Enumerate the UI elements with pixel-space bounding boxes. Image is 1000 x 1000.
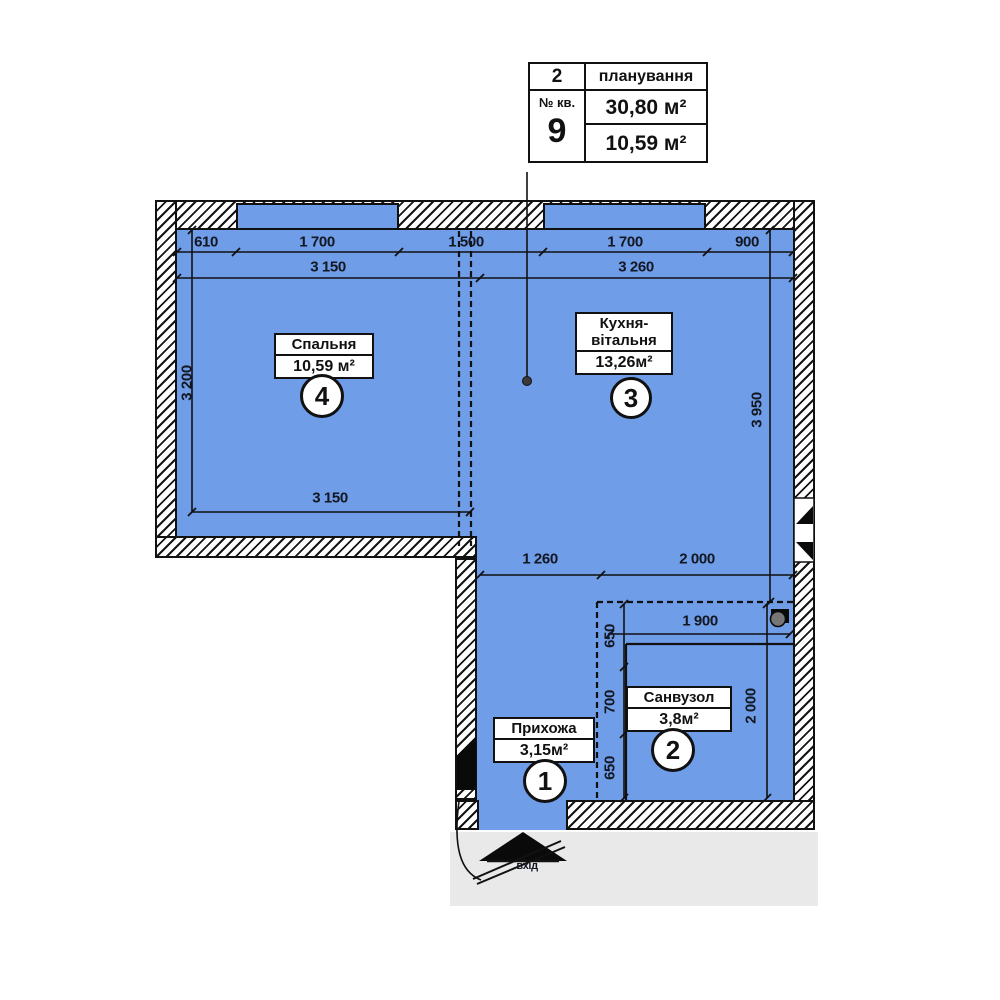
- dim-bath-left-650b: 650: [602, 756, 619, 780]
- plan-linework: [0, 0, 1000, 1000]
- dim-top-seg-610: 610: [194, 234, 218, 251]
- kitchen-number-badge: 3: [610, 377, 652, 419]
- bathroom-area: 3,8м²: [628, 709, 730, 730]
- kitchen-area: 13,26м²: [577, 352, 671, 373]
- dim-bath-left-700: 700: [602, 690, 619, 714]
- apartment-number-cell: № кв. 9: [530, 91, 586, 161]
- hallway-area: 3,15м²: [495, 740, 593, 761]
- entrance-label: вхід: [516, 860, 537, 872]
- hallway-label: Прихожа 3,15м²: [493, 717, 595, 763]
- floor-plan-canvas: 610 1 700 1 500 1 700 900 3 150 3 260 3 …: [0, 0, 1000, 1000]
- dim-top-total-3150: 3 150: [310, 259, 346, 276]
- bedroom-label: Спальня 10,59 м²: [274, 333, 374, 379]
- dim-right-height-3950: 3 950: [749, 392, 766, 428]
- title-block-row-areas: № кв. 9 30,80 м² 10,59 м²: [530, 91, 706, 161]
- apartment-number: 9: [530, 110, 584, 152]
- bathroom-label: Санвузол 3,8м²: [626, 686, 732, 732]
- bedroom-number-badge: 4: [300, 374, 344, 418]
- bathroom-name: Санвузол: [628, 688, 730, 709]
- dim-left-height-3200: 3 200: [179, 365, 196, 401]
- hallway-name: Прихожа: [495, 719, 593, 740]
- title-block-row-floor: 2 планування: [530, 64, 706, 91]
- dim-bedroom-bottom-3150: 3 150: [312, 490, 348, 507]
- living-area: 10,59 м²: [586, 125, 706, 161]
- plan-label: планування: [586, 64, 706, 89]
- floor-number: 2: [530, 64, 586, 89]
- dim-top-seg-1500: 1 500: [448, 234, 484, 251]
- dim-bath-left-650a: 650: [602, 624, 619, 648]
- dim-lower-1260: 1 260: [522, 551, 558, 568]
- dim-bath-height-2000: 2 000: [743, 688, 760, 724]
- title-block: 2 планування № кв. 9 30,80 м² 10,59 м²: [528, 62, 708, 163]
- dim-top-seg-900: 900: [735, 234, 759, 251]
- kitchen-label: Кухня-вітальня 13,26м²: [575, 312, 673, 375]
- dim-top-seg-1700b: 1 700: [607, 234, 643, 251]
- kitchen-name: Кухня-вітальня: [577, 314, 671, 352]
- bathroom-number-badge: 2: [651, 728, 695, 772]
- dim-top-seg-1700a: 1 700: [299, 234, 335, 251]
- dim-bath-width-1900: 1 900: [682, 613, 718, 630]
- hallway-number-badge: 1: [523, 759, 567, 803]
- dim-lower-2000: 2 000: [679, 551, 715, 568]
- apartment-number-label: № кв.: [530, 91, 584, 110]
- total-area: 30,80 м²: [586, 91, 706, 125]
- areas-cell: 30,80 м² 10,59 м²: [586, 91, 706, 161]
- dim-top-total-3260: 3 260: [618, 259, 654, 276]
- bedroom-name: Спальня: [276, 335, 372, 356]
